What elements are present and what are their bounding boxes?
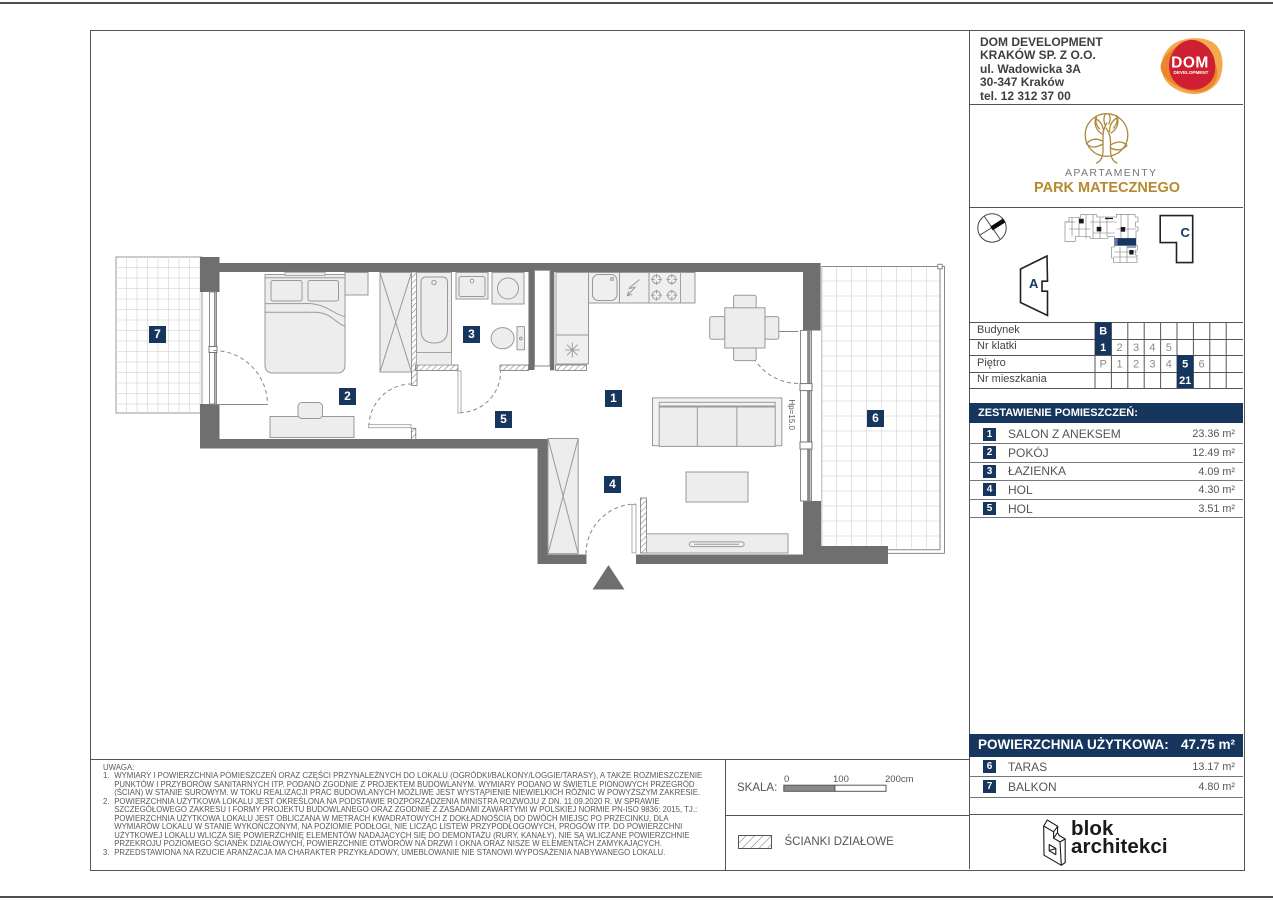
svg-text:3: 3 (1149, 359, 1155, 371)
svg-text:5: 5 (1182, 359, 1188, 371)
svg-text:A: A (1029, 276, 1039, 291)
svg-text:1: 1 (1117, 359, 1123, 371)
svg-text:DOM: DOM (1171, 55, 1209, 72)
svg-text:2: 2 (1133, 359, 1139, 371)
svg-text:Hp=15.0: Hp=15.0 (787, 400, 796, 431)
svg-text:0: 0 (784, 774, 789, 785)
svg-text:200cm: 200cm (885, 774, 914, 785)
svg-text:3: 3 (1133, 342, 1139, 354)
svg-text:2: 2 (1117, 342, 1123, 354)
svg-text:21: 21 (1179, 375, 1191, 387)
svg-text:4: 4 (1149, 342, 1155, 354)
svg-text:1: 1 (1100, 342, 1106, 354)
svg-text:4: 4 (1166, 359, 1172, 371)
svg-text:100: 100 (833, 774, 849, 785)
svg-text:B: B (1099, 326, 1107, 338)
svg-text:5: 5 (1166, 342, 1172, 354)
svg-text:6: 6 (1199, 359, 1205, 371)
svg-text:P: P (1100, 359, 1107, 371)
svg-text:C: C (1181, 225, 1191, 240)
svg-text:DEVELOPMENT: DEVELOPMENT (1174, 70, 1209, 75)
